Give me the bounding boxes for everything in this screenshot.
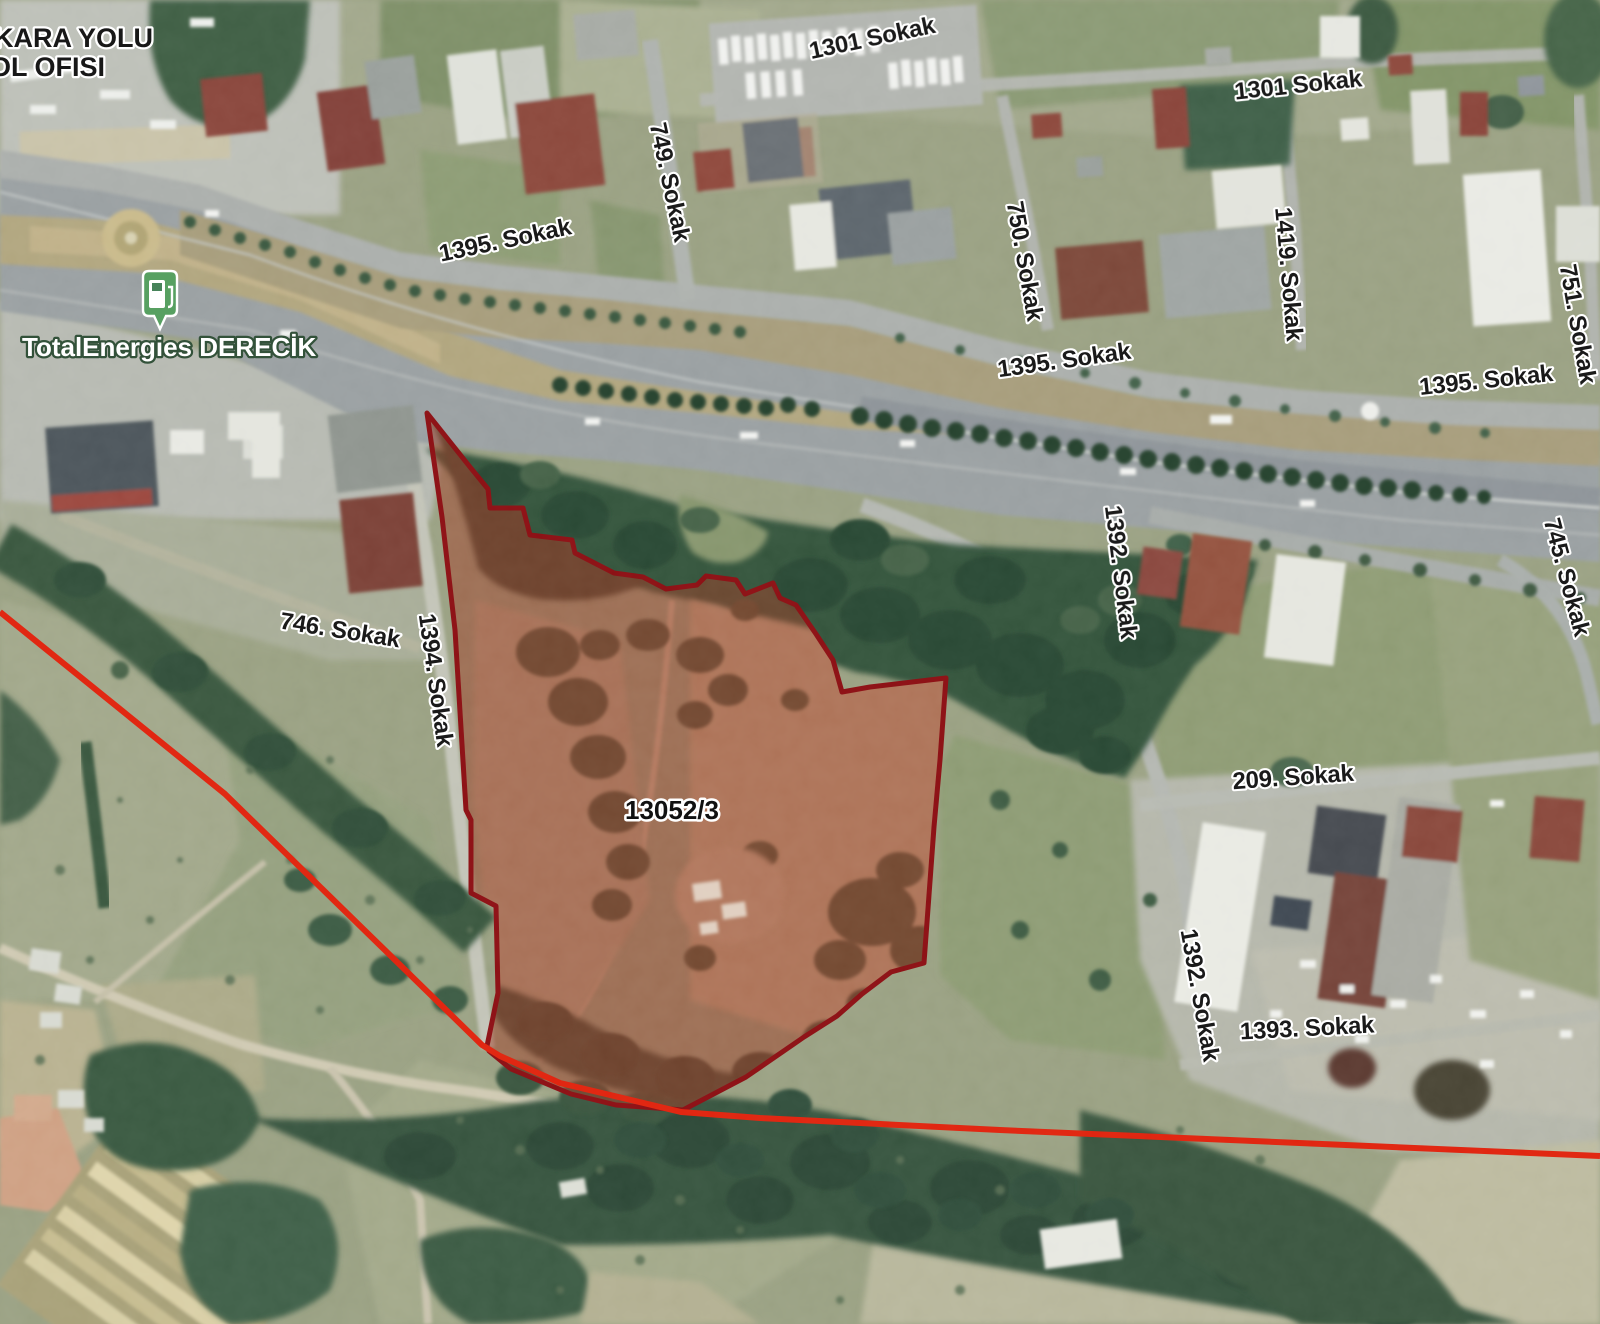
svg-text:13052/3: 13052/3	[625, 795, 719, 825]
svg-text:OL OFISI: OL OFISI	[0, 52, 105, 82]
svg-text:KARA YOLU: KARA YOLU	[0, 23, 153, 53]
svg-text:TotalEnergies DERECİK: TotalEnergies DERECİK	[22, 332, 316, 362]
